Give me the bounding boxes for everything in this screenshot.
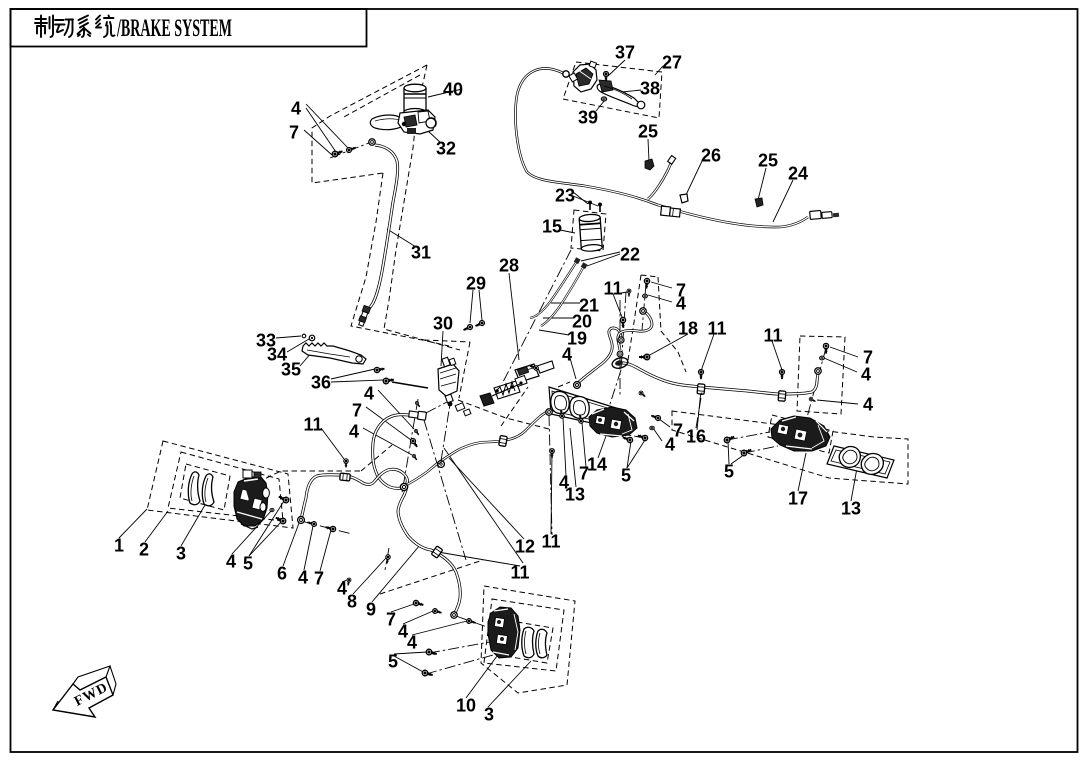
svg-text:6: 6 <box>277 564 287 584</box>
svg-text:8: 8 <box>347 592 357 612</box>
svg-text:18: 18 <box>678 319 698 339</box>
svg-text:5: 5 <box>724 462 734 482</box>
svg-text:4: 4 <box>665 435 675 455</box>
svg-text:29: 29 <box>466 274 486 294</box>
svg-text:7: 7 <box>289 123 299 143</box>
svg-text:3: 3 <box>176 544 186 564</box>
svg-text:5: 5 <box>388 652 398 672</box>
svg-text:27: 27 <box>662 53 682 73</box>
svg-text:11: 11 <box>603 279 622 299</box>
svg-text:36: 36 <box>311 373 331 393</box>
svg-text:7: 7 <box>314 569 324 589</box>
svg-text:23: 23 <box>555 186 575 206</box>
svg-text:4: 4 <box>364 384 374 404</box>
svg-text:10: 10 <box>456 696 476 716</box>
svg-text:4: 4 <box>863 395 873 415</box>
svg-text:4: 4 <box>676 294 686 314</box>
svg-text:26: 26 <box>701 146 721 166</box>
svg-text:12: 12 <box>515 537 535 557</box>
svg-text:4: 4 <box>349 422 359 442</box>
svg-text:/BRAKE SYSTEM: /BRAKE SYSTEM <box>116 15 232 42</box>
svg-text:3: 3 <box>484 705 494 725</box>
svg-text:37: 37 <box>615 43 635 63</box>
svg-text:7: 7 <box>579 464 589 484</box>
svg-text:35: 35 <box>281 360 301 380</box>
svg-text:40: 40 <box>443 80 463 100</box>
svg-text:5: 5 <box>243 554 253 574</box>
svg-text:4: 4 <box>861 365 871 385</box>
svg-text:22: 22 <box>620 245 640 265</box>
svg-text:25: 25 <box>638 122 658 142</box>
svg-text:15: 15 <box>542 217 562 237</box>
svg-text:7: 7 <box>352 401 362 421</box>
svg-text:13: 13 <box>841 499 861 519</box>
svg-text:9: 9 <box>366 600 376 620</box>
svg-text:16: 16 <box>686 427 706 447</box>
svg-text:4: 4 <box>298 568 308 588</box>
svg-text:4: 4 <box>562 345 572 365</box>
svg-text:13: 13 <box>565 485 585 505</box>
svg-text:25: 25 <box>758 151 778 171</box>
svg-text:31: 31 <box>411 243 431 263</box>
svg-text:4: 4 <box>407 633 417 653</box>
svg-text:32: 32 <box>436 139 456 159</box>
svg-text:11: 11 <box>510 563 529 583</box>
svg-text:30: 30 <box>433 314 453 334</box>
svg-text:2: 2 <box>139 540 149 560</box>
svg-text:4: 4 <box>226 552 236 572</box>
svg-text:17: 17 <box>788 489 808 509</box>
svg-text:7: 7 <box>386 610 396 630</box>
svg-text:28: 28 <box>499 256 519 276</box>
svg-text:11: 11 <box>541 532 560 552</box>
svg-text:5: 5 <box>621 466 631 486</box>
svg-text:11: 11 <box>763 326 782 346</box>
svg-text:1: 1 <box>114 536 124 556</box>
svg-text:39: 39 <box>578 108 598 128</box>
svg-text:24: 24 <box>788 164 808 184</box>
svg-text:11: 11 <box>303 415 322 435</box>
svg-text:14: 14 <box>587 455 607 475</box>
svg-text:4: 4 <box>291 99 301 119</box>
svg-text:11: 11 <box>707 319 726 339</box>
svg-text:4: 4 <box>337 579 347 599</box>
svg-text:38: 38 <box>640 79 660 99</box>
